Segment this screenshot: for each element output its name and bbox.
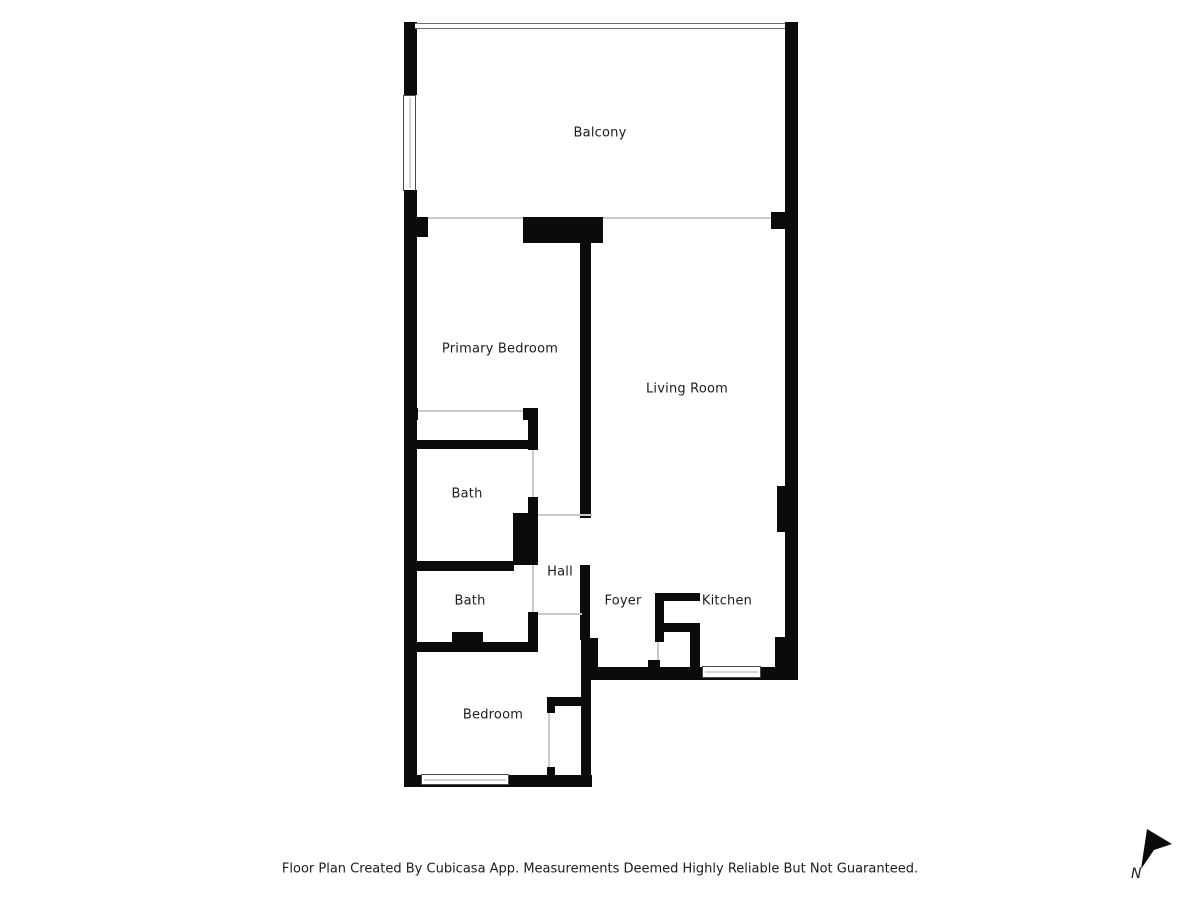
wall-bath2-fixture-bump	[452, 632, 483, 642]
wall-foyer-corner-block	[581, 638, 598, 680]
room-label-balcony: Balcony	[574, 126, 627, 141]
wall-spine-mid	[580, 565, 590, 640]
balcony-railing	[415, 23, 787, 29]
wall-tab-balcony-left	[404, 217, 428, 237]
primary-closet-opening-line	[417, 410, 523, 412]
wall-pantry-left-upper	[655, 601, 664, 642]
wall-bedroom-closet-stub-bottom	[547, 767, 555, 776]
wall-pantry-top-bar	[655, 593, 700, 601]
bedroom-closet-door-line	[548, 713, 550, 767]
floor-plan-canvas: Balcony Primary Bedroom Living Room Bath…	[0, 0, 1200, 900]
wall-tab-balcony-right	[771, 212, 786, 229]
room-label-living-room: Living Room	[646, 382, 728, 397]
room-label-bath-2: Bath	[454, 594, 485, 609]
wall-exterior-left-balcony	[404, 22, 417, 95]
room-label-kitchen: Kitchen	[702, 594, 752, 609]
room-label-primary-bedroom: Primary Bedroom	[442, 342, 558, 357]
bath1-door-line	[532, 450, 534, 497]
wall-bath1-bottom	[404, 561, 514, 571]
wall-pantry-right	[690, 623, 700, 673]
wall-pillar-right-upper	[777, 486, 786, 532]
room-label-bedroom: Bedroom	[463, 708, 523, 723]
hall-bottom-opening-line	[538, 613, 582, 615]
wall-balcony-door-header	[523, 217, 603, 243]
wall-exterior-right	[785, 22, 798, 675]
north-label: N	[1131, 866, 1141, 882]
window-balcony-left	[403, 95, 416, 191]
room-label-bath-1: Bath	[451, 487, 482, 502]
window-bedroom	[421, 774, 509, 785]
wall-pantry-stub-bottom	[648, 660, 660, 670]
wall-closet-tab-left	[404, 408, 418, 420]
wall-spine-lower	[581, 677, 591, 787]
wall-bath1-top	[404, 440, 531, 449]
wall-bedroom-top	[404, 642, 535, 652]
wall-pillar-right-lower	[775, 637, 786, 675]
wall-spine-upper	[580, 218, 591, 518]
bath2-door-line	[532, 565, 534, 612]
wall-bedroom-closet-stub-top	[547, 697, 555, 713]
room-label-foyer: Foyer	[604, 594, 641, 609]
footer-disclaimer: Floor Plan Created By Cubicasa App. Meas…	[282, 862, 918, 877]
wall-exterior-left-main	[404, 190, 417, 787]
hall-top-opening-line	[538, 514, 592, 516]
room-label-hall: Hall	[547, 565, 573, 580]
window-kitchen	[702, 666, 761, 678]
wall-plumbing-chunk	[513, 513, 538, 565]
